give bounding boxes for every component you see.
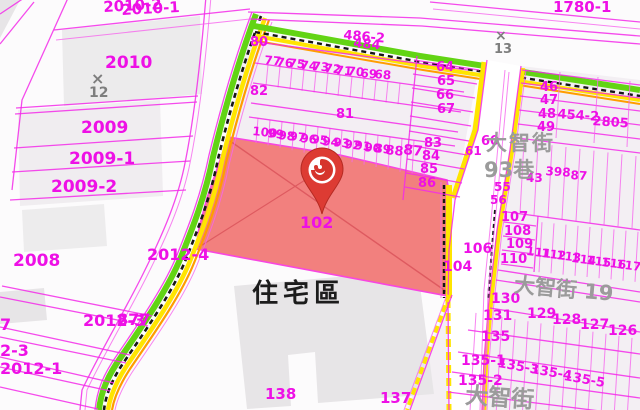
- map-viewport[interactable]: 2010-22010-12010×1220092009-12009-220082…: [0, 0, 640, 410]
- location-pin-icon[interactable]: [299, 146, 345, 216]
